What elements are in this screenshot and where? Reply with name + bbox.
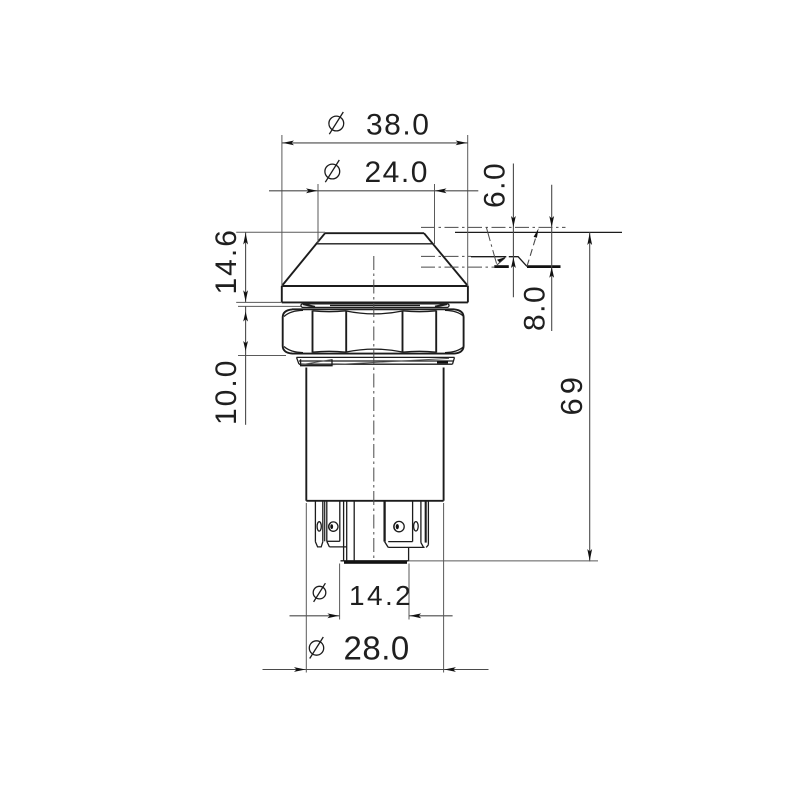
svg-text:28.0: 28.0 <box>344 630 410 667</box>
svg-text:14.6: 14.6 <box>210 228 243 294</box>
svg-text:69: 69 <box>554 373 589 415</box>
svg-text:10.0: 10.0 <box>210 359 243 425</box>
svg-text:6.0: 6.0 <box>479 162 512 208</box>
svg-text:38.0: 38.0 <box>366 109 430 142</box>
svg-text:14.2: 14.2 <box>349 580 413 611</box>
svg-text:8.0: 8.0 <box>519 285 552 331</box>
svg-text:24.0: 24.0 <box>365 156 429 189</box>
